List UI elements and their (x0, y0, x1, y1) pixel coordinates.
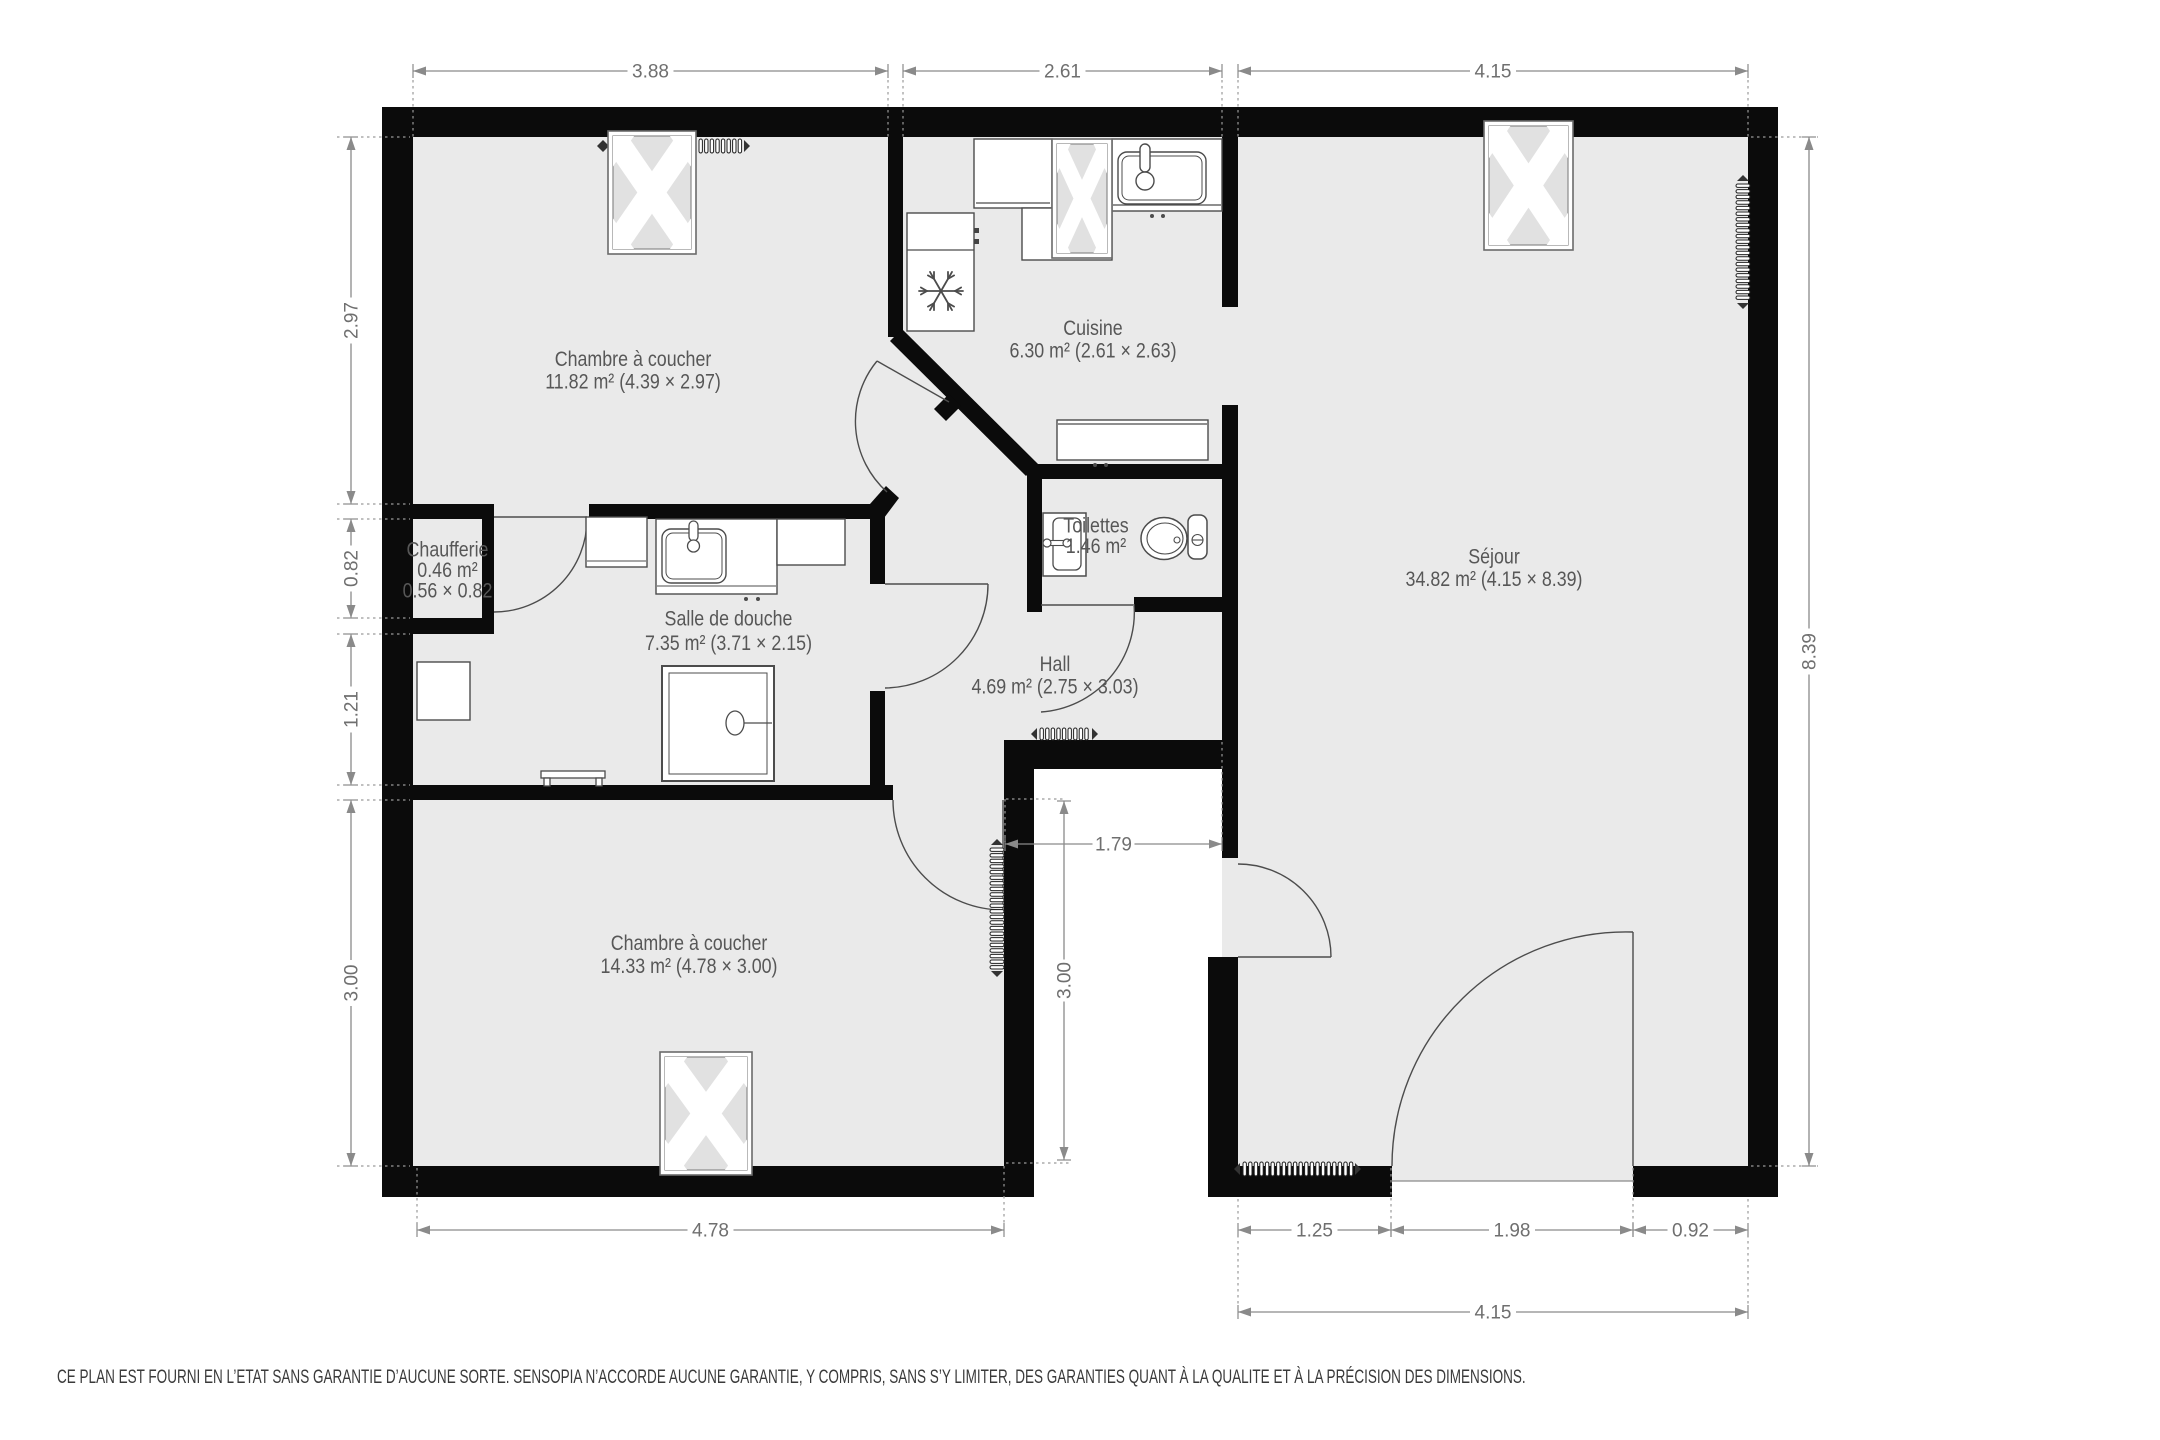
svg-text:Cuisine: Cuisine (1063, 317, 1122, 341)
svg-text:Séjour: Séjour (1468, 545, 1520, 569)
svg-text:11.82 m² (4.39 × 2.97): 11.82 m² (4.39 × 2.97) (545, 370, 721, 394)
svg-text:4.78: 4.78 (692, 1221, 729, 1242)
svg-text:0.56 × 0.82: 0.56 × 0.82 (403, 579, 493, 603)
svg-text:34.82 m² (4.15 × 8.39): 34.82 m² (4.15 × 8.39) (1406, 568, 1583, 592)
svg-text:Chambre à coucher: Chambre à coucher (555, 348, 712, 372)
svg-text:3.88: 3.88 (632, 62, 669, 83)
svg-text:4.15: 4.15 (1475, 62, 1512, 83)
svg-text:0.92: 0.92 (1672, 1221, 1709, 1242)
svg-text:2.97: 2.97 (342, 302, 363, 339)
svg-text:3.00: 3.00 (342, 965, 363, 1002)
svg-text:1.46 m²: 1.46 m² (1066, 535, 1127, 559)
svg-text:7.35 m² (3.71 × 2.15): 7.35 m² (3.71 × 2.15) (645, 632, 812, 656)
svg-text:CE PLAN EST FOURNI EN L’ETAT S: CE PLAN EST FOURNI EN L’ETAT SANS GARANT… (57, 1366, 1526, 1388)
svg-text:0.82: 0.82 (342, 550, 363, 587)
svg-text:3.00: 3.00 (1055, 962, 1076, 999)
svg-text:1.79: 1.79 (1095, 835, 1132, 856)
svg-text:4.69 m² (2.75 × 3.03): 4.69 m² (2.75 × 3.03) (971, 675, 1138, 699)
svg-text:1.98: 1.98 (1494, 1221, 1531, 1242)
svg-text:Hall: Hall (1040, 653, 1071, 677)
svg-text:Chambre à coucher: Chambre à coucher (611, 932, 768, 956)
svg-text:1.21: 1.21 (342, 691, 363, 728)
svg-text:Salle de douche: Salle de douche (665, 607, 793, 631)
svg-text:1.25: 1.25 (1296, 1221, 1333, 1242)
svg-text:2.61: 2.61 (1044, 62, 1081, 83)
svg-text:8.39: 8.39 (1800, 633, 1821, 670)
svg-text:6.30 m² (2.61 × 2.63): 6.30 m² (2.61 × 2.63) (1009, 339, 1176, 363)
svg-text:4.15: 4.15 (1475, 1303, 1512, 1324)
svg-text:14.33 m² (4.78 × 3.00): 14.33 m² (4.78 × 3.00) (601, 955, 778, 979)
